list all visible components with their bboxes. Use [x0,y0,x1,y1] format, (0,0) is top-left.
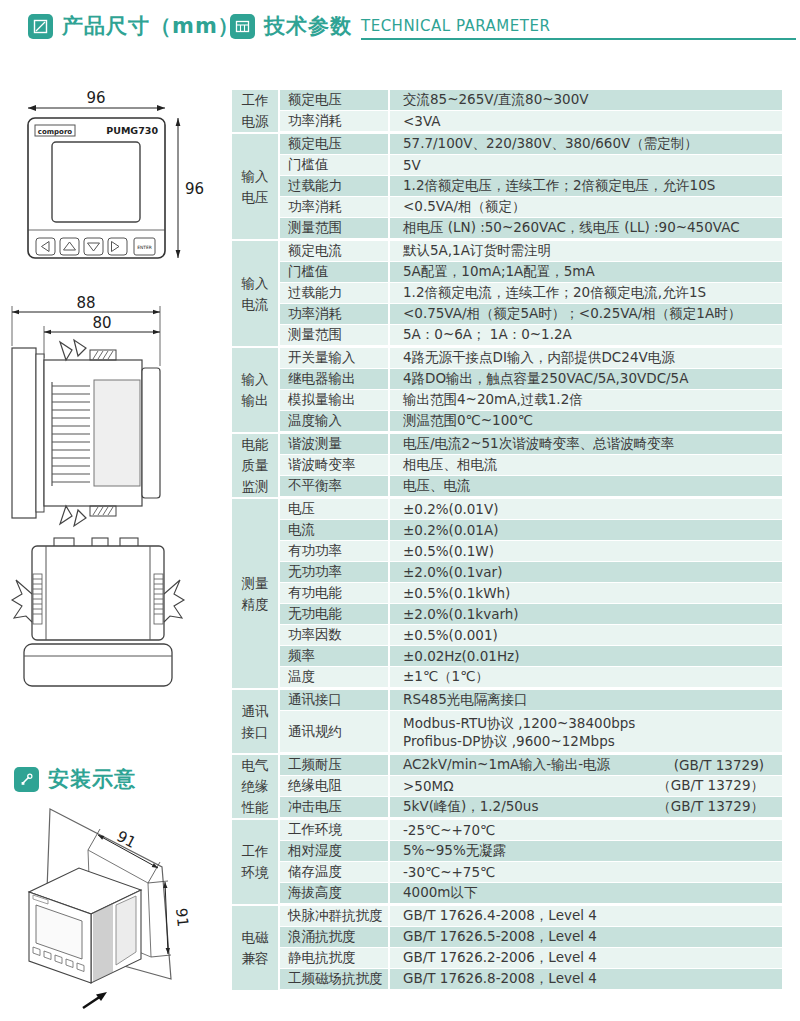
spec-value-text: ±0.2%(0.01V) [403,501,498,517]
spec-label: 工频磁场抗扰度 [280,969,388,989]
spec-value-text: <0.75VA/相（额定5A时）；<0.25VA/相（额定1A时） [403,305,741,323]
spec-rows: 谐波测量电压/电流2~51次谐波畸变率、总谐波畸变率谐波畸变率相电压、相电流不平… [280,434,782,497]
spec-value-text: 57.7/100V、220/380V、380/660V（需定制） [403,135,698,153]
spec-value: 5kV(峰值)，1.2/50us（GB/T 13729） [390,797,782,817]
spec-label: 快脉冲群抗扰度 [280,906,388,926]
spec-standard-note: （GB/T 13729） [657,798,768,816]
spec-value-text: 4路DO输出，触点容量250VAC/5A,30VDC/5A [403,370,688,388]
datasheet-page: 产品尺寸（mm） 技术参数 TECHNICAL PARAMETER 安装示意 [0,0,800,1021]
spec-label: 静电抗扰度 [280,948,388,968]
spec-value: ±0.2%(0.01V) [390,499,782,519]
spec-label: 功率因数 [280,625,388,645]
spec-value-text: 1.2倍额定电压，连续工作；2倍额定电压，允许10S [403,177,715,195]
spec-value: ±0.5%(0.001) [390,625,782,645]
spec-value: GB/T 17626.4-2008，Level 4 [390,906,782,926]
spec-group-name: 电气绝缘性能 [232,755,278,818]
spec-value-text: GB/T 17626.8-2008，Level 4 [403,970,597,988]
table-row: 过载能力1.2倍额定电压，连续工作；2倍额定电压，允许10S [280,176,782,197]
spec-value: 1.2倍额定电压，连续工作；2倍额定电压，允许10S [390,176,782,196]
spec-value: ±0.02Hz(0.01Hz) [390,646,782,666]
table-row: 开关量输入4路无源干接点DI输入，内部提供DC24V电源 [280,348,782,369]
spec-group: 输入电流额定电流默认5A,1A订货时需注明门槛值5A配置，10mA;1A配置，5… [232,241,782,346]
spec-value-text: GB/T 17626.2-2006，Level 4 [403,949,597,967]
spec-group: 通讯接口通讯接口RS485光电隔离接口通讯规约Modbus-RTU协议 ,120… [232,690,782,753]
section-product-size: 产品尺寸（mm） [28,12,240,40]
spec-value-text: 1.2倍额定电流，连续工作；20倍额定电流,允许1S [403,284,706,302]
spec-value: 1.2倍额定电流，连续工作；20倍额定电流,允许1S [390,283,782,303]
table-row: 测量范围相电压 (LN) :50~260VAC，线电压 (LL) :90~450… [280,218,782,239]
section-title-install: 安装示意 [48,765,136,793]
spec-label: 过载能力 [280,176,388,196]
spec-value: ±2.0%(0.1kvarh) [390,604,782,624]
model-label: PUMG730 [106,125,158,136]
spec-group-name: 输入电流 [232,241,278,346]
spec-label: 功率消耗 [280,197,388,217]
spec-group-name: 通讯接口 [232,690,278,753]
spec-rows: 额定电流默认5A,1A订货时需注明门槛值5A配置，10mA;1A配置，5mA过载… [280,241,782,346]
spec-rows: 通讯接口RS485光电隔离接口通讯规约Modbus-RTU协议 ,1200~38… [280,690,782,753]
spec-value: ±0.5%(0.1W) [390,541,782,561]
spec-value: 5%~95%无凝露 [390,841,782,861]
spec-value-line: Modbus-RTU协议 ,1200~38400bps [403,714,635,732]
spec-value-text: AC2kV/min~1mA输入-输出-电源 [403,756,610,774]
dim-front-height: 96 [185,180,204,198]
spec-group-name: 输入输出 [232,348,278,432]
spec-rows: 工作环境-25℃~+70℃相对湿度5%~95%无凝露储存温度-30℃~+75℃海… [280,820,782,904]
spec-value-text: 5A：0~6A； 1A：0~1.2A [403,326,572,344]
spec-value-text: ±0.02Hz(0.01Hz) [403,648,519,664]
table-row: 额定电流默认5A,1A订货时需注明 [280,241,782,262]
table-row: 额定电压57.7/100V、220/380V、380/660V（需定制） [280,134,782,155]
section-title-tech-cn: 技术参数 [264,12,352,40]
spec-value: 5A：0~6A； 1A：0~1.2A [390,325,782,345]
spec-label: 通讯接口 [280,690,388,710]
spec-value: GB/T 17626.5-2008，Level 4 [390,927,782,947]
spec-value-text: ±1℃（1℃） [403,668,489,686]
table-row: 静电抗扰度GB/T 17626.2-2006，Level 4 [280,948,782,969]
spec-value: ±0.2%(0.01A) [390,520,782,540]
spec-value-text: <3VA [403,113,441,129]
spec-label: 功率消耗 [280,304,388,324]
spec-value: 4路无源干接点DI输入，内部提供DC24V电源 [390,348,782,368]
spec-value-text: 4路无源干接点DI输入，内部提供DC24V电源 [403,349,675,367]
spec-label: 电压 [280,499,388,519]
section-title-product-size: 产品尺寸（mm） [62,12,240,40]
spec-label: 门槛值 [280,155,388,175]
enter-button-label: ENTER [137,245,152,250]
dim-front-width: 96 [86,89,105,107]
brand-label: comporo [38,128,73,136]
spec-value-text: >50MΩ [403,778,453,794]
table-row: 过载能力1.2倍额定电流，连续工作；20倍额定电流,允许1S [280,283,782,304]
spec-value: AC2kV/min~1mA输入-输出-电源(GB/T 13729) [390,755,782,775]
spec-value-text: ±2.0%(0.1kvarh) [403,606,519,622]
spec-label: 相对湿度 [280,841,388,861]
table-row: 温度±1℃（1℃） [280,667,782,688]
spec-rows: 额定电压57.7/100V、220/380V、380/660V（需定制）门槛值5… [280,134,782,239]
table-row: 不平衡率电压、电流 [280,476,782,497]
spec-label: 过载能力 [280,283,388,303]
spec-group: 电能质量监测谐波测量电压/电流2~51次谐波畸变率、总谐波畸变率谐波畸变率相电压… [232,434,782,497]
spec-label: 测量范围 [280,325,388,345]
spec-label: 额定电压 [280,90,388,110]
spec-value-text: GB/T 17626.5-2008，Level 4 [403,928,597,946]
spec-label: 有功功率 [280,541,388,561]
spec-group-name: 输入电压 [232,134,278,239]
table-row: 有功功率±0.5%(0.1W) [280,541,782,562]
table-row: 温度输入测温范围0℃~100℃ [280,411,782,432]
front-view-drawing: 96 comporo PUMG730 ENTER 96 [8,88,223,300]
table-row: 相对湿度5%~95%无凝露 [280,841,782,862]
spec-value: 4000m以下 [390,883,782,903]
spec-label: 无功电能 [280,604,388,624]
spec-value-text: 相电压 (LN) :50~260VAC，线电压 (LL) :90~450VAC [403,219,740,237]
table-row: 功率消耗<0.5VA/相（额定） [280,197,782,218]
table-row: 电流±0.2%(0.01A) [280,520,782,541]
spec-standard-note: (GB/T 13729) [674,757,768,773]
spec-value: 电压、电流 [390,476,782,496]
spec-label: 绝缘电阻 [280,776,388,796]
wrench-icon [14,767,39,792]
spec-value-text: 默认5A,1A订货时需注明 [403,242,551,260]
dim-side-outer: 88 [76,296,95,312]
spec-label: 功率消耗 [280,111,388,131]
spec-value: GB/T 17626.8-2008，Level 4 [390,969,782,989]
spec-label: 温度输入 [280,411,388,431]
rear-view-drawing [2,530,197,702]
spec-label: 模拟量输出 [280,390,388,410]
spec-value-text: ±0.2%(0.01A) [403,522,498,538]
spec-value-text: 电压/电流2~51次谐波畸变率、总谐波畸变率 [403,435,674,453]
spec-group: 输入输出开关量输入4路无源干接点DI输入，内部提供DC24V电源继电器输出4路D… [232,348,782,432]
spec-value: <0.75VA/相（额定5A时）；<0.25VA/相（额定1A时） [390,304,782,324]
spec-value: 相电压、相电流 [390,455,782,475]
installation-drawing: 91 91 [8,795,218,1017]
spec-group-name: 工作环境 [232,820,278,904]
spec-label: 工作环境 [280,820,388,840]
spec-label: 开关量输入 [280,348,388,368]
spec-label: 无功功率 [280,562,388,582]
table-row: 工频耐压AC2kV/min~1mA输入-输出-电源(GB/T 13729) [280,755,782,776]
spec-value: <0.5VA/相（额定） [390,197,782,217]
technical-parameter-table: 工作电源额定电压交流85~265V/直流80~300V功率消耗<3VA输入电压额… [232,90,782,990]
spec-rows: 额定电压交流85~265V/直流80~300V功率消耗<3VA [280,90,782,132]
spec-value: Modbus-RTU协议 ,1200~38400bpsProfibus-DP协议… [390,711,782,752]
section-technical-parameter: 技术参数 TECHNICAL PARAMETER [230,12,796,40]
table-row: 海拔高度4000m以下 [280,883,782,904]
spec-value: RS485光电隔离接口 [390,690,782,710]
spec-label: 测量范围 [280,218,388,238]
spec-value-text: 交流85~265V/直流80~300V [403,91,589,109]
spec-value: ±1℃（1℃） [390,667,782,687]
spec-value: 电压/电流2~51次谐波畸变率、总谐波畸变率 [390,434,782,454]
table-row: 谐波测量电压/电流2~51次谐波畸变率、总谐波畸变率 [280,434,782,455]
spec-value-text: ±0.5%(0.001) [403,627,498,643]
dim-install-height: 91 [172,907,192,928]
spec-value: 默认5A,1A订货时需注明 [390,241,782,261]
spec-value: 输出范围4~20mA,过载1.2倍 [390,390,782,410]
spec-label: 海拔高度 [280,883,388,903]
table-row: 有功电能±0.5%(0.1kWh) [280,583,782,604]
spec-label: 温度 [280,667,388,687]
spec-value: 测温范围0℃~100℃ [390,411,782,431]
spec-label: 频率 [280,646,388,666]
spec-value: -25℃~+70℃ [390,820,782,840]
spec-value: 交流85~265V/直流80~300V [390,90,782,110]
side-view-drawing: 88 80 [2,296,197,528]
spec-value-text: 5V [403,157,421,173]
spec-label: 电流 [280,520,388,540]
table-row: 频率±0.02Hz(0.01Hz) [280,646,782,667]
table-grid-icon [230,14,255,39]
spec-label: 额定电压 [280,134,388,154]
spec-label: 谐波畸变率 [280,455,388,475]
spec-group: 输入电压额定电压57.7/100V、220/380V、380/660V（需定制）… [232,134,782,239]
spec-value: 57.7/100V、220/380V、380/660V（需定制） [390,134,782,154]
spec-value: 相电压 (LN) :50~260VAC，线电压 (LL) :90~450VAC [390,218,782,238]
spec-group-name: 电能质量监测 [232,434,278,497]
table-row: 测量范围5A：0~6A； 1A：0~1.2A [280,325,782,346]
table-row: 模拟量输出输出范围4~20mA,过载1.2倍 [280,390,782,411]
spec-value-text: ±0.5%(0.1kWh) [403,585,510,601]
spec-value-text: 测温范围0℃~100℃ [403,412,533,430]
section-install: 安装示意 [14,765,136,793]
table-row: 快脉冲群抗扰度GB/T 17626.4-2008，Level 4 [280,906,782,927]
spec-label: 储存温度 [280,862,388,882]
spec-group-name: 工作电源 [232,90,278,132]
spec-value-text: 5A配置，10mA;1A配置，5mA [403,263,595,281]
spec-standard-note: （GB/T 13729） [657,777,768,795]
spec-value: GB/T 17626.2-2006，Level 4 [390,948,782,968]
spec-value-text: ±2.0%(0.1var) [403,564,502,580]
section-title-tech-en: TECHNICAL PARAMETER [361,17,796,40]
spec-rows: 电压±0.2%(0.01V)电流±0.2%(0.01A)有功功率±0.5%(0.… [280,499,782,688]
spec-group: 工作电源额定电压交流85~265V/直流80~300V功率消耗<3VA [232,90,782,132]
spec-value-text: GB/T 17626.4-2008，Level 4 [403,907,597,925]
table-row: 功率消耗<3VA [280,111,782,132]
table-row: 无功功率±2.0%(0.1var) [280,562,782,583]
table-row: 无功电能±2.0%(0.1kvarh) [280,604,782,625]
spec-label: 冲击电压 [280,797,388,817]
spec-value: ±0.5%(0.1kWh) [390,583,782,603]
spec-label: 额定电流 [280,241,388,261]
spec-label: 工频耐压 [280,755,388,775]
table-row: 通讯接口RS485光电隔离接口 [280,690,782,711]
spec-value-text: -30℃~+75℃ [403,864,495,880]
spec-value-text: 5kV(峰值)，1.2/50us [403,798,538,816]
table-row: 门槛值5V [280,155,782,176]
spec-label: 谐波测量 [280,434,388,454]
spec-label: 门槛值 [280,262,388,282]
spec-rows: 快脉冲群抗扰度GB/T 17626.4-2008，Level 4浪涌抗扰度GB/… [280,906,782,990]
spec-value: ±2.0%(0.1var) [390,562,782,582]
table-row: 通讯规约Modbus-RTU协议 ,1200~38400bpsProfibus-… [280,711,782,753]
spec-value-text: 输出范围4~20mA,过载1.2倍 [403,391,583,409]
table-row: 储存温度-30℃~+75℃ [280,862,782,883]
spec-label: 继电器输出 [280,369,388,389]
ruler-document-icon [28,14,53,39]
dim-side-inner: 80 [92,314,111,332]
table-row: 工频磁场抗扰度GB/T 17626.8-2008，Level 4 [280,969,782,990]
table-row: 门槛值5A配置，10mA;1A配置，5mA [280,262,782,283]
table-row: 绝缘电阻>50MΩ（GB/T 13729） [280,776,782,797]
spec-label: 有功电能 [280,583,388,603]
table-row: 谐波畸变率相电压、相电流 [280,455,782,476]
table-row: 电压±0.2%(0.01V) [280,499,782,520]
spec-value: >50MΩ（GB/T 13729） [390,776,782,796]
spec-label: 不平衡率 [280,476,388,496]
spec-rows: 工频耐压AC2kV/min~1mA输入-输出-电源(GB/T 13729)绝缘电… [280,755,782,818]
table-row: 冲击电压5kV(峰值)，1.2/50us（GB/T 13729） [280,797,782,818]
spec-group: 测量精度电压±0.2%(0.01V)电流±0.2%(0.01A)有功功率±0.5… [232,499,782,688]
table-row: 工作环境-25℃~+70℃ [280,820,782,841]
spec-group: 工作环境工作环境-25℃~+70℃相对湿度5%~95%无凝露储存温度-30℃~+… [232,820,782,904]
spec-value-text: ±0.5%(0.1W) [403,543,494,559]
spec-group-name: 测量精度 [232,499,278,688]
spec-value-text: RS485光电隔离接口 [403,691,528,709]
spec-value-text: 电压、电流 [403,477,471,495]
spec-value-text: <0.5VA/相（额定） [403,198,525,216]
spec-value: 5V [390,155,782,175]
table-row: 继电器输出4路DO输出，触点容量250VAC/5A,30VDC/5A [280,369,782,390]
spec-value: 5A配置，10mA;1A配置，5mA [390,262,782,282]
table-row: 功率消耗<0.75VA/相（额定5A时）；<0.25VA/相（额定1A时） [280,304,782,325]
spec-rows: 开关量输入4路无源干接点DI输入，内部提供DC24V电源继电器输出4路DO输出，… [280,348,782,432]
spec-value-line: Profibus-DP协议 ,9600~12Mbps [403,732,615,750]
spec-label: 通讯规约 [280,711,388,752]
spec-value-text: 5%~95%无凝露 [403,842,506,860]
spec-value-text: 相电压、相电流 [403,456,498,474]
spec-value: -30℃~+75℃ [390,862,782,882]
table-row: 功率因数±0.5%(0.001) [280,625,782,646]
spec-value: 4路DO输出，触点容量250VAC/5A,30VDC/5A [390,369,782,389]
table-row: 额定电压交流85~265V/直流80~300V [280,90,782,111]
spec-label: 浪涌抗扰度 [280,927,388,947]
spec-value-text: 4000m以下 [403,884,478,902]
table-row: 浪涌抗扰度GB/T 17626.5-2008，Level 4 [280,927,782,948]
spec-value: <3VA [390,111,782,131]
spec-group: 电气绝缘性能工频耐压AC2kV/min~1mA输入-输出-电源(GB/T 137… [232,755,782,818]
spec-value-text: -25℃~+70℃ [403,822,495,838]
spec-group: 电磁兼容快脉冲群抗扰度GB/T 17626.4-2008，Level 4浪涌抗扰… [232,906,782,990]
spec-group-name: 电磁兼容 [232,906,278,990]
